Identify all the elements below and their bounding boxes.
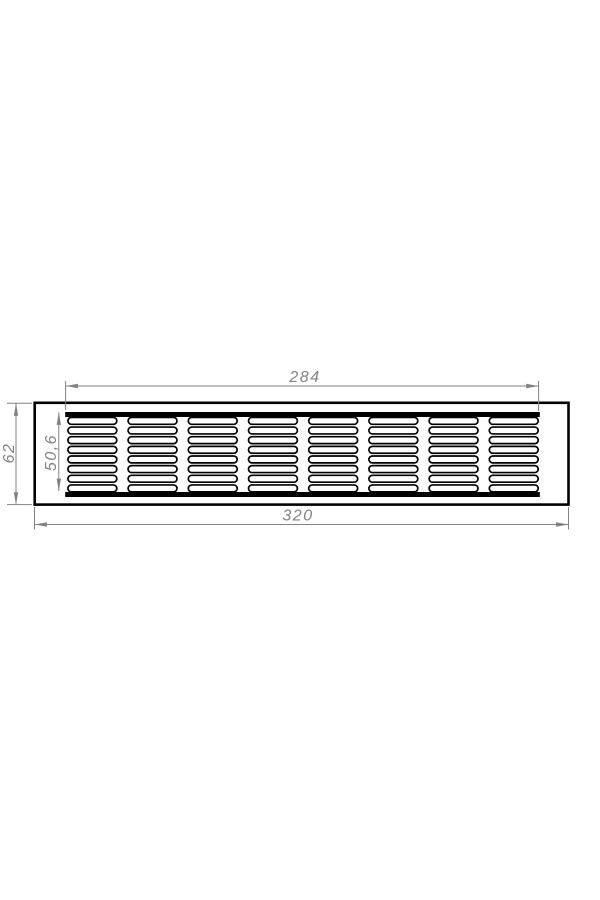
arrowhead: [14, 403, 18, 415]
vent-slot: [489, 427, 538, 434]
vent-slot: [68, 485, 117, 492]
vent-slot: [309, 485, 358, 492]
vent-slot: [489, 417, 538, 424]
arrowhead: [66, 384, 78, 388]
vent-slot: [68, 475, 117, 482]
vent-slot: [188, 417, 237, 424]
vent-slot: [128, 427, 177, 434]
vent-slot: [429, 446, 478, 453]
vent-slot: [309, 456, 358, 463]
vent-slot: [309, 417, 358, 424]
vent-slot: [309, 466, 358, 473]
vent-slot: [489, 446, 538, 453]
vent-slot: [128, 466, 177, 473]
vent-slot: [429, 466, 478, 473]
vent-slot: [369, 466, 418, 473]
vent-slot: [429, 437, 478, 444]
vent-slot: [369, 456, 418, 463]
vent-slot: [429, 485, 478, 492]
vent-slot: [68, 456, 117, 463]
dim-label-overall-height: 62: [1, 443, 18, 464]
vent-slot: [249, 456, 298, 463]
vent-slot: [369, 417, 418, 424]
vent-slot: [249, 437, 298, 444]
vent-slot: [68, 427, 117, 434]
vent-slot: [188, 427, 237, 434]
vent-slot: [369, 485, 418, 492]
vent-slot: [68, 417, 117, 424]
vent-slot: [249, 446, 298, 453]
dim-label-slot-field-height: 50,6: [43, 434, 60, 471]
vent-slot: [429, 456, 478, 463]
vent-slot: [249, 485, 298, 492]
vent-slot: [249, 427, 298, 434]
vent-slot: [128, 456, 177, 463]
grille-bottom-rail: [65, 492, 540, 497]
vent-slot: [369, 475, 418, 482]
vent-slot: [309, 427, 358, 434]
vent-slot: [188, 437, 237, 444]
vent-slot: [128, 485, 177, 492]
vent-slot: [369, 437, 418, 444]
vent-slot: [188, 475, 237, 482]
vent-slot: [429, 475, 478, 482]
vent-slot: [188, 466, 237, 473]
vent-slot: [68, 446, 117, 453]
vent-slot: [489, 466, 538, 473]
arrowhead: [14, 492, 18, 504]
grille-technical-drawing: 284 320 62 50,6: [0, 0, 600, 900]
dim-label-overall-width: 320: [282, 508, 313, 525]
vent-slot: [128, 437, 177, 444]
vent-slot: [128, 475, 177, 482]
grille-top-rail: [65, 412, 540, 417]
vent-slot: [68, 466, 117, 473]
vent-slot: [128, 417, 177, 424]
dimension-overall-height: 62: [1, 403, 32, 504]
drawing-canvas: 284 320 62 50,6: [0, 0, 600, 900]
vent-slot: [369, 427, 418, 434]
vent-slot: [249, 417, 298, 424]
vent-slot: [128, 446, 177, 453]
vent-slot: [249, 475, 298, 482]
vent-slot: [429, 427, 478, 434]
dimension-overall-width: 320: [35, 507, 569, 530]
vent-slot: [489, 475, 538, 482]
vent-slot: [68, 437, 117, 444]
vent-slot: [188, 485, 237, 492]
vent-slot: [309, 437, 358, 444]
vent-slot: [249, 466, 298, 473]
arrowhead: [556, 522, 568, 526]
vent-slot: [188, 456, 237, 463]
grille-part: [35, 403, 569, 505]
vent-slot: [489, 437, 538, 444]
vent-slot: [429, 417, 478, 424]
dim-label-slot-field-width: 284: [288, 369, 320, 386]
vent-slot: [489, 485, 538, 492]
vent-slot: [188, 446, 237, 453]
vent-slot: [369, 446, 418, 453]
vent-slot: [309, 475, 358, 482]
vent-slot: [489, 456, 538, 463]
vent-slot: [309, 446, 358, 453]
arrowhead: [526, 384, 538, 388]
arrowhead: [35, 522, 47, 526]
